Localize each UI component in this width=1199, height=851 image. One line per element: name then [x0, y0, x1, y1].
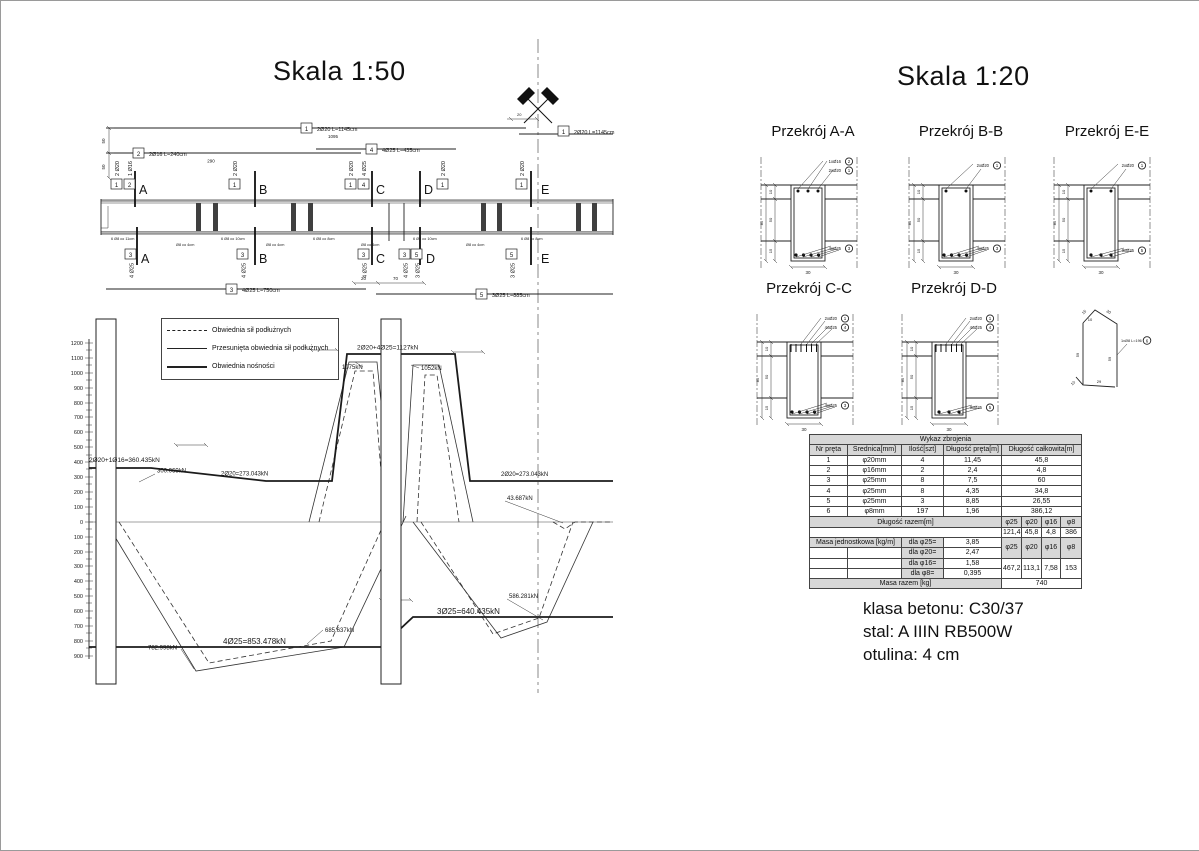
stirrup-spacing-label: Ø8 co 4cm — [176, 243, 194, 247]
dim-label: 50 — [916, 217, 921, 222]
table-row: 1φ20mm411,4545,8 — [810, 455, 1082, 465]
bar-label: 1xØ16 — [829, 159, 842, 164]
dim-label: 10 — [764, 346, 769, 351]
dim-label: 59 — [1075, 352, 1080, 357]
y-tick-label: 300 — [74, 475, 83, 481]
dim-label: 15 — [764, 405, 769, 410]
section-a-drawing: 1xØ16 2 2xØ20 1 4xØ25 3 10 50 15 85 30 — [751, 153, 869, 277]
dim-label: 20 — [361, 276, 367, 281]
bar-count-label: 4 Ø25 — [362, 161, 368, 176]
y-tick-label: 1200 — [71, 341, 83, 347]
y-tick-label: 400 — [74, 579, 83, 585]
section-c-drawing: 2xØ20 1 4xØ25 4 4xØ25 3 10 50 15 85 30 — [747, 310, 865, 434]
callout-label: 2Ø20 L=1145cm — [317, 127, 358, 133]
envelope-dashed-tail — [553, 522, 613, 529]
annotation: 685.637kN — [325, 628, 354, 634]
drawing-sheet: Skala 1:50 Skala 1:20 20 1 2Ø20 L=1145cm… — [0, 0, 1199, 851]
bar-label: 2xØ20 — [1122, 163, 1135, 168]
axis-flags-symbol: 20 — [507, 87, 559, 123]
bar-label: 4xØ25 — [825, 325, 838, 330]
bar-label: 2xØ20 — [829, 168, 842, 173]
annotation: 586.281kN — [509, 594, 538, 600]
bar-number: 1 — [1141, 163, 1144, 168]
bar-label: 2xØ20 — [825, 316, 838, 321]
support-column-left — [96, 319, 116, 684]
bar-number: 4 — [989, 325, 992, 330]
y-tick-label: 800 — [74, 401, 83, 407]
table-row: 3φ25mm87,560 — [810, 476, 1082, 486]
material-notes: klasa betonu: C30/37 stal: A IIIN RB500W… — [863, 597, 1024, 666]
support-column-middle — [381, 319, 401, 684]
bar-label: 4xØ25 — [970, 325, 983, 330]
bar-number: 6 — [1146, 338, 1149, 343]
table-title: Wykaz zbrojenia — [810, 435, 1082, 445]
bar-count-label: 3 Ø25 — [416, 263, 422, 278]
section-b-drawing: 2xØ20 1 4xØ25 3 10 50 15 85 30 — [899, 153, 1017, 277]
bar-callouts-bottom: 3 4Ø25 L=750cm 5 3Ø25 L=885cm 20 70 — [106, 276, 613, 299]
bar-count-label: 4 Ø25 — [242, 263, 248, 278]
annotation: 300.069kN — [157, 469, 186, 475]
section-letter: B — [259, 252, 267, 266]
shifted-envelope-peak-left — [309, 362, 393, 522]
bar-number: 1 — [989, 316, 992, 321]
bar-count-label: 2 Ø20 — [233, 161, 239, 176]
dim-label: 10 — [916, 189, 921, 194]
envelope-dashed-peak-right — [417, 375, 459, 522]
y-tick-label: 900 — [74, 386, 83, 392]
callout-label: 2Ø20 L=1145cm — [574, 130, 615, 136]
table-row: 6φ8mm1971,96386,12 — [810, 507, 1082, 517]
section-letter: A — [141, 252, 150, 266]
dim-label: 50 — [768, 217, 773, 222]
y-tick-label: 200 — [74, 550, 83, 556]
dim-label: 85 — [907, 220, 912, 225]
annotation: 2Ø20+4Ø25=1127kN — [357, 345, 419, 352]
callout-label: 2Ø16 L=240cm — [149, 152, 187, 158]
unit-mass-row: Masa jednostkowa [kg/m] dla φ25=3,85 φ25… — [810, 537, 1082, 547]
dim-label: 59 — [1107, 356, 1112, 361]
bar-count-label: 2 Ø20 — [520, 161, 526, 176]
bar-label: 3xØ25 — [1122, 248, 1135, 253]
chart-legend: Obwiednia sił podłużnych Przesunięta obw… — [161, 318, 339, 380]
y-tick-label: 100 — [74, 505, 83, 511]
section-e-drawing: 2xØ20 1 3xØ25 5 10 50 15 85 30 — [1044, 153, 1162, 277]
bar-label: 2xØ20 — [977, 163, 990, 168]
beam-elevation-and-envelope-svg: 20 1 2Ø20 L=1145cm 1095 1 2Ø20 L=1145cm … — [61, 31, 661, 701]
total-mass-row: Masa razem [kg] 740 — [810, 579, 1082, 589]
annotation: 3Ø25=640.435kN — [437, 607, 500, 616]
dim-label: 70 — [393, 276, 399, 281]
bar-number: 3 — [996, 246, 999, 251]
y-tick-label: 700 — [74, 624, 83, 630]
y-tick-label: 700 — [74, 415, 83, 421]
section-letter: E — [541, 252, 549, 266]
dim-label: 50 — [101, 164, 106, 170]
shifted-envelope-right — [413, 522, 593, 638]
dim-label: 10 — [1061, 189, 1066, 194]
callout-label: 4Ø25 L=750cm — [242, 288, 280, 294]
annotation: 43.687kN — [507, 496, 533, 502]
dim-label: 50 — [1061, 217, 1066, 222]
dim-label: 20 — [1106, 308, 1113, 315]
annotation-leaders — [139, 362, 563, 669]
stirrup-detail-drawing: 15 20 10 59 59 29 10 1xØ8 L=196 6 — [1065, 297, 1157, 411]
bar-count-label: 4 Ø25 — [404, 263, 410, 278]
bar-count-label: 2 Ø20 — [441, 161, 447, 176]
dim-label: 85 — [755, 377, 760, 382]
column-header: Nr pręta — [810, 445, 848, 455]
rebar-schedule-table: Wykaz zbrojenia Nr pręta Średnica[mm] Il… — [809, 434, 1082, 589]
callout-label: 3Ø25 L=885cm — [492, 293, 530, 299]
solid-line-sample — [167, 348, 207, 349]
scale-title-right: Skala 1:20 — [897, 61, 1030, 92]
legend-label: Obwiednia sił podłużnych — [212, 327, 291, 335]
section-d-title: Przekrój D-D — [894, 280, 1014, 297]
legend-label: Obwiednia nośności — [212, 363, 275, 371]
section-letter: C — [376, 252, 385, 266]
bar-count-label: 3 Ø25 — [511, 263, 517, 278]
dim-label: 10 — [1070, 379, 1077, 386]
dim-label: 30 — [946, 427, 952, 432]
dim-label: 10 — [768, 189, 773, 194]
dim-label: 15 — [768, 248, 773, 253]
annotation: 1052kN — [421, 366, 442, 372]
section-c-title: Przekrój C-C — [749, 280, 869, 297]
chart-annotations: 2Ø20+1Ø16=360.435kN 300.069kN 2Ø20=273.0… — [89, 345, 548, 652]
annotation: 4Ø25=853.478kN — [223, 637, 286, 646]
bar-number: 1 — [844, 316, 847, 321]
bar-count-label: 2 Ø20 — [115, 161, 121, 176]
y-axis-tick-labels: 1200 1100 1000 900 800 700 600 500 400 3… — [71, 341, 83, 660]
section-letter: A — [139, 183, 148, 197]
bar-label: 4xØ25 — [829, 246, 842, 251]
bar-label: 4xØ25 — [977, 246, 990, 251]
stirrup-spacing-label: 6 Ø8 co 10cm — [413, 237, 437, 241]
column-header: Długość pręta[m] — [944, 445, 1002, 455]
dim-label: 50 — [101, 138, 106, 144]
y-tick-label: 300 — [74, 564, 83, 570]
section-letter: D — [424, 183, 433, 197]
dashed-line-sample — [167, 330, 207, 331]
callout-label: 4Ø25 L=435cm — [382, 148, 420, 154]
dim-label: 30 — [801, 427, 807, 432]
y-tick-label: 500 — [74, 594, 83, 600]
bar-label: 3xØ25 — [970, 405, 983, 410]
stirrup-spacing-label: 6 Ø8 co 8cm — [313, 237, 335, 241]
note-line: otulina: 4 cm — [863, 643, 1024, 666]
envelope-chart: 1200 1100 1000 900 800 700 600 500 400 3… — [71, 319, 613, 684]
envelope-dashed-peak-left — [319, 371, 385, 522]
total-length-values: 121,445,84,8386 — [810, 527, 1082, 537]
stirrup-spacing-label: Ø8 co 4cm — [266, 243, 284, 247]
annotation: 2Ø20+1Ø16=360.435kN — [89, 457, 160, 464]
note-line: stal: A IIIN RB500W — [863, 620, 1024, 643]
bar-number: 3 — [848, 246, 851, 251]
y-tick-label: 100 — [74, 535, 83, 541]
table-row: 4φ25mm84,3534,8 — [810, 486, 1082, 496]
dim-label: 15 — [1061, 248, 1066, 253]
section-d-drawing: 2xØ20 1 4xØ25 4 3xØ25 5 10 50 15 85 30 — [892, 310, 1010, 434]
annotation: 782.998kN — [148, 646, 177, 652]
bar-count-label: 2 Ø20 — [349, 161, 355, 176]
y-tick-label: 0 — [80, 520, 83, 526]
legend-entry: Obwiednia sił podłużnych — [167, 327, 333, 335]
section-letter: C — [376, 183, 385, 197]
dim-label: 29 — [1097, 379, 1102, 384]
y-tick-label: 400 — [74, 460, 83, 466]
stirrup-spacing-label: Ø8 co 4cm — [466, 243, 484, 247]
section-a-title: Przekrój A-A — [753, 123, 873, 140]
dim-label: 15 — [916, 248, 921, 253]
y-tick-label: 500 — [74, 445, 83, 451]
dim-label: 85 — [900, 377, 905, 382]
bar-number: 1 — [848, 168, 851, 173]
y-tick-label: 900 — [74, 654, 83, 660]
y-tick-label: 1100 — [71, 356, 83, 362]
y-tick-label: 800 — [74, 639, 83, 645]
section-letter: B — [259, 183, 267, 197]
stirrup-spacing-label: 6 Ø8 co 11cm — [111, 237, 134, 241]
dim-label: 10 — [1088, 317, 1093, 322]
bar-count-label: 4 Ø25 — [130, 263, 136, 278]
thick-line-sample — [167, 366, 207, 368]
dim-label: 50 — [764, 374, 769, 379]
table-row: 5φ25mm38,8526,55 — [810, 496, 1082, 506]
table-row: 2φ16mm22,44,8 — [810, 465, 1082, 475]
bar-number: 1 — [996, 163, 999, 168]
y-tick-label: 200 — [74, 490, 83, 496]
bar-number: 3 — [844, 403, 847, 408]
dim-label: 50 — [909, 374, 914, 379]
section-letter: E — [541, 183, 549, 197]
shifted-envelope-peak-right — [403, 365, 473, 522]
stirrup-spacing-labels: 6 Ø8 co 11cm Ø8 co 4cm 6 Ø8 co 10cm Ø8 c… — [111, 237, 543, 247]
dim-label: 85 — [759, 220, 764, 225]
legend-entry: Obwiednia nośności — [167, 363, 333, 371]
note-line: klasa betonu: C30/37 — [863, 597, 1024, 620]
stirrup-spacing-label: 6 Ø8 co 10cm — [221, 237, 245, 241]
dim-label: 10 — [909, 346, 914, 351]
legend-label: Przesunięta obwiednia sił podłużnych — [212, 345, 328, 353]
section-e-title: Przekrój E-E — [1047, 123, 1167, 140]
bar-label: 2xØ20 — [970, 316, 983, 321]
total-length-row: Długość razem[m] φ25φ20φ16φ8 — [810, 517, 1082, 527]
column-header: Średnica[mm] — [848, 445, 902, 455]
dim-label: 20 — [517, 112, 522, 117]
annotation: 2Ø20=273.043kN — [221, 472, 268, 478]
bar-number: 2 — [848, 159, 851, 164]
stirrup-spacing-label: Ø8 co 4cm — [361, 243, 379, 247]
bar-number: 5 — [989, 405, 992, 410]
y-tick-label: 1000 — [71, 371, 83, 377]
bar-label: 1xØ8 L=196 — [1121, 339, 1142, 343]
section-letter: D — [426, 252, 435, 266]
dim-label: 1095 — [328, 134, 339, 139]
beam-body — [101, 199, 613, 241]
dim-label: 15 — [909, 405, 914, 410]
column-header: Długość całkowita[m] — [1002, 445, 1082, 455]
bar-label: 4xØ25 — [825, 403, 838, 408]
bar-count-label: 1 Ø16 — [128, 161, 134, 176]
section-b-title: Przekrój B-B — [901, 123, 1021, 140]
unit-mass-row: dla φ16=1,58 467,2113,17,58153 — [810, 558, 1082, 568]
annotation: 2Ø20=273.043kN — [501, 472, 548, 478]
dim-label: 30 — [1098, 270, 1104, 275]
annotation: 1075kN — [342, 365, 363, 371]
dim-label: 85 — [1052, 220, 1057, 225]
bar-number: 5 — [1141, 248, 1144, 253]
dim-label: 15 — [1081, 308, 1088, 315]
y-tick-label: 600 — [74, 430, 83, 436]
legend-entry: Przesunięta obwiednia sił podłużnych — [167, 345, 333, 353]
column-header: Ilość[szt] — [902, 445, 944, 455]
dim-label: 30 — [805, 270, 811, 275]
y-tick-label: 600 — [74, 609, 83, 615]
dim-label: 30 — [953, 270, 959, 275]
dim-label: 290 — [207, 159, 215, 164]
bar-number: 4 — [844, 325, 847, 330]
